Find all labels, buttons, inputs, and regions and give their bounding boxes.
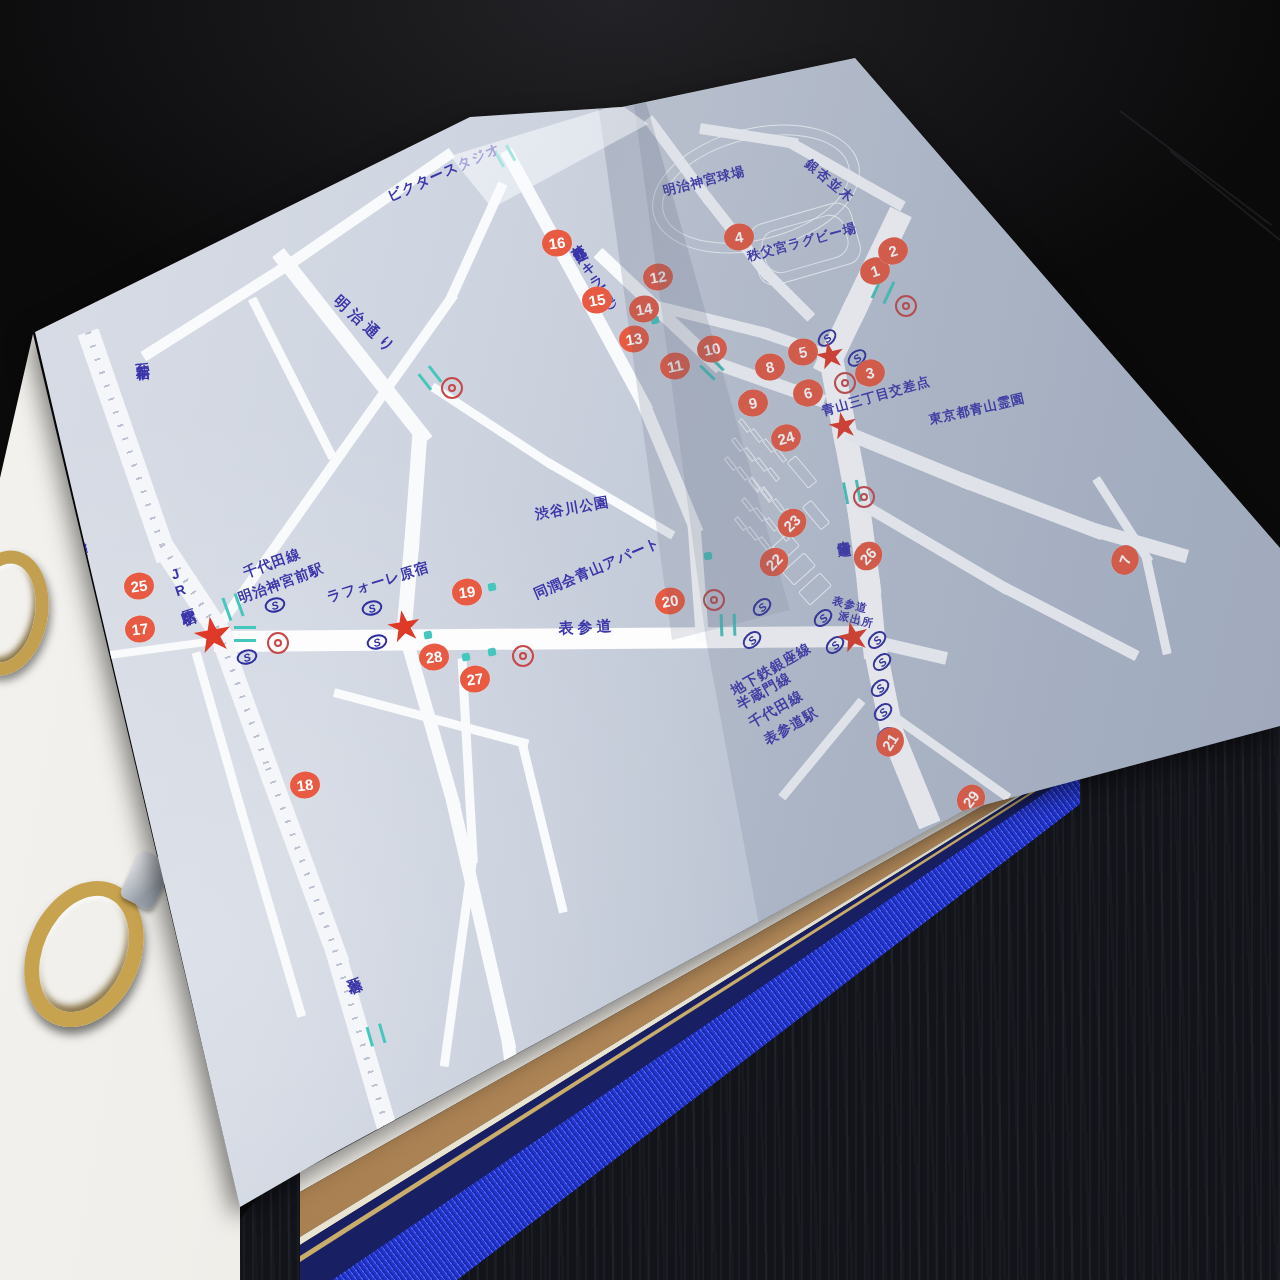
road-line [502,1039,548,1280]
railway-line [325,947,445,1280]
entrance-ring-icon [267,632,289,654]
road-line [518,741,568,913]
map-marker: 25 [122,571,155,602]
road-line [272,247,432,445]
entrance-ring-inner [274,639,282,647]
place-label: 表参道 [558,618,616,637]
railway-ties [332,949,439,1280]
star-icon: ★ [188,608,239,663]
map-marker: 17 [123,614,156,645]
railway-line [78,328,178,563]
place-label: 渋谷川公園 [534,494,610,521]
map-sheet: SSSSSSSSSSSSSSS★★★★★ビクタースタジオ明治神宮球場銀杏並木外苑… [0,0,1280,1280]
star-icon: ★ [382,602,426,650]
place-label: 同潤会青山アパート [532,535,663,602]
subway-icon: S [263,595,287,615]
road-line [446,797,517,1051]
entrance-ring-inner [519,652,527,660]
entrance-ring-icon [512,645,534,667]
entrance-ring-icon [441,377,463,399]
railway-ties [85,331,170,561]
road-line [283,147,456,270]
map-sheet-wrap: SSSSSSSSSSSSSSS★★★★★ビクタースタジオ明治神宮球場銀杏並木外苑… [0,0,1280,1280]
map-marker: 18 [288,770,321,801]
entrance-ring-inner [448,384,456,392]
map-marker: 19 [450,577,483,608]
subway-icon: S [360,598,384,618]
road-line [404,431,428,551]
signal-dot-icon [487,647,496,656]
road-line [440,855,478,1066]
place-label: 明治神宮 [65,525,81,534]
signal-dot-icon [971,813,980,822]
signal-bridge-icon [234,626,256,642]
signal-dot-icon [487,582,496,591]
signal-dot-icon [461,652,470,661]
photo-of-map-in-ring-binder: SSSSSSSSSSSSSSS★★★★★ビクタースタジオ明治神宮球場銀杏並木外苑… [0,0,1280,1280]
